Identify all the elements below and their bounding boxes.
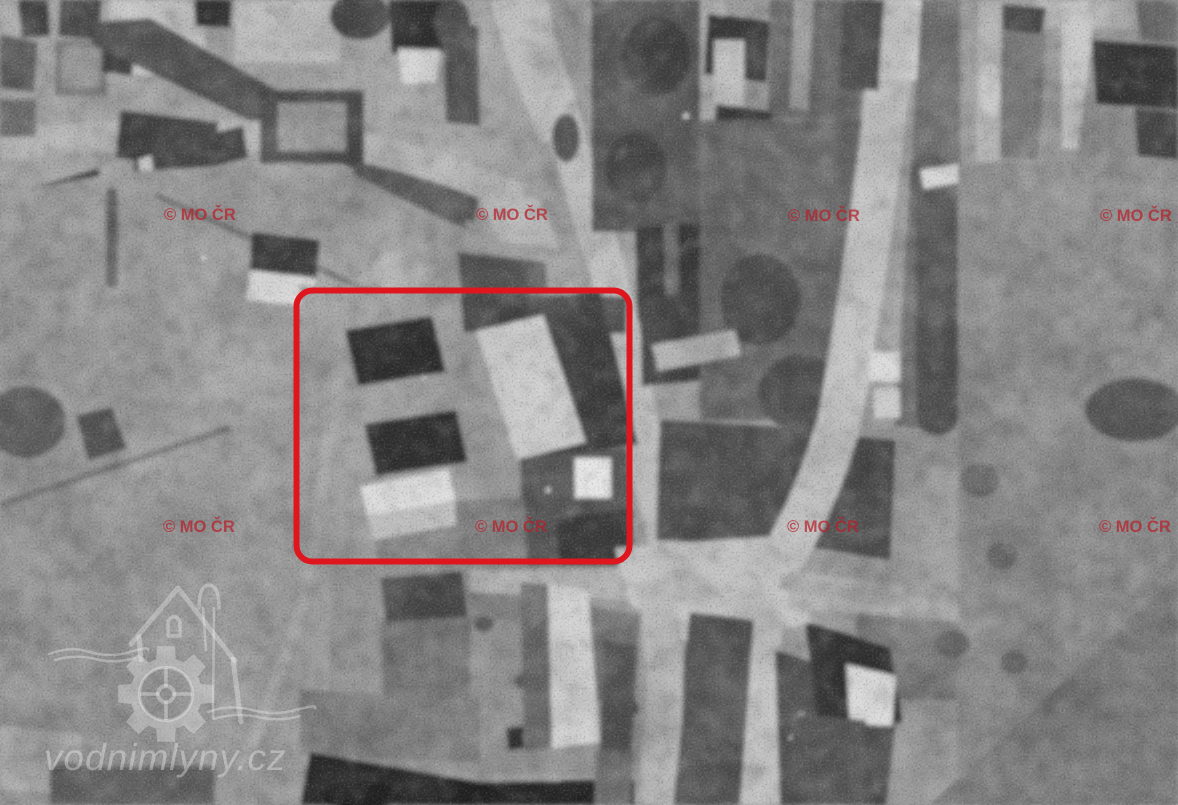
svg-text:© MO ČR: © MO ČR <box>163 517 235 536</box>
svg-text:vodnimlyny.cz: vodnimlyny.cz <box>44 737 287 778</box>
svg-text:© MO ČR: © MO ČR <box>475 517 547 536</box>
svg-text:© MO ČR: © MO ČR <box>164 205 236 224</box>
svg-text:© MO ČR: © MO ČR <box>1100 206 1172 225</box>
svg-text:© MO ČR: © MO ČR <box>788 206 860 225</box>
svg-text:© MO ČR: © MO ČR <box>1099 517 1171 536</box>
svg-text:© MO ČR: © MO ČR <box>476 205 548 224</box>
svg-text:© MO ČR: © MO ČR <box>787 517 859 536</box>
